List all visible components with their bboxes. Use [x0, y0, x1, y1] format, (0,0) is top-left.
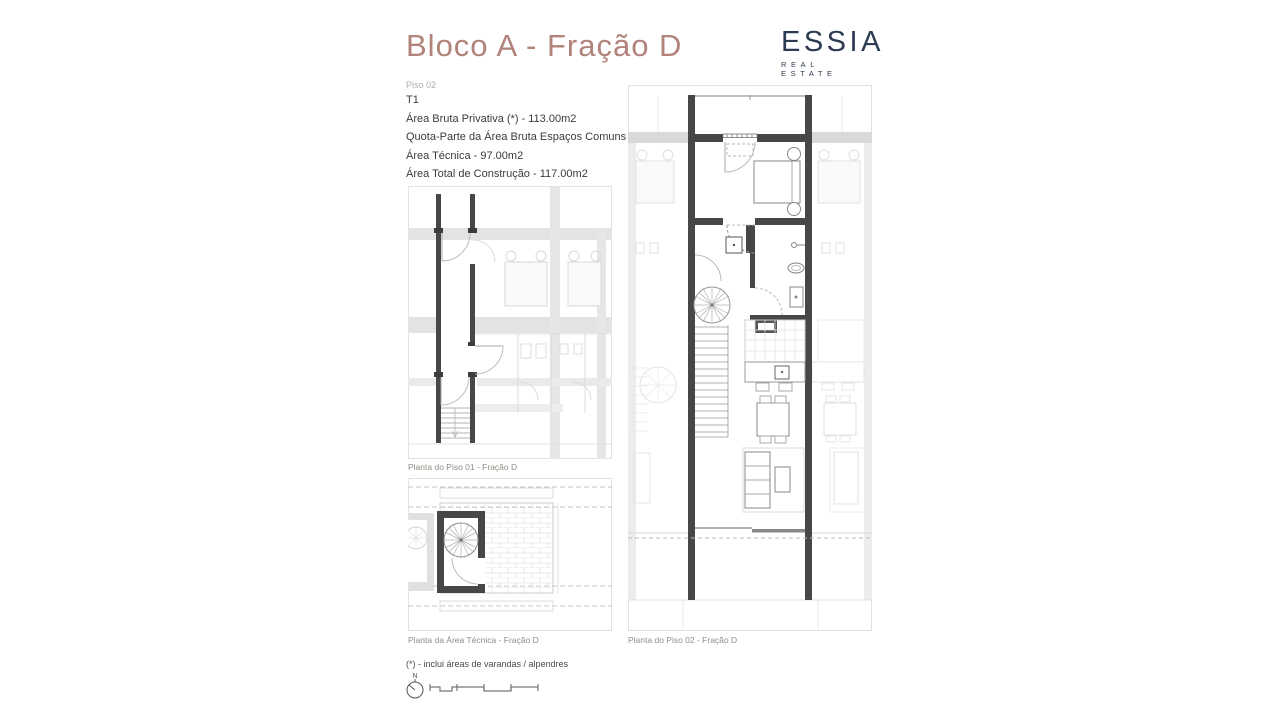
plan-piso02	[628, 85, 872, 631]
dining-table	[757, 396, 789, 443]
floor-label: Piso 02	[406, 80, 436, 90]
plan-piso01	[408, 186, 612, 459]
area-line: Área Total de Construção - 117.00m2	[406, 168, 588, 180]
north-compass-icon: N	[403, 670, 429, 702]
typology-label: T1	[406, 94, 419, 106]
brand-name: ESSIA	[781, 28, 872, 57]
north-label: N	[412, 673, 417, 680]
floor-plan-sheet: Bloco A - Fração D ESSIA REAL ESTATE Pis…	[0, 0, 1280, 720]
footnote: (*) - inclui áreas de varandas / alpendr…	[406, 659, 568, 669]
plan-area-tecnica-drawing	[408, 478, 612, 631]
area-line: Área Técnica - 97.00m2	[406, 150, 523, 162]
plan-piso02-drawing	[628, 85, 872, 631]
area-line: Área Bruta Privativa (*) - 113.00m2	[406, 113, 576, 125]
plan-area-tecnica	[408, 478, 612, 631]
plan-piso02-caption: Planta do Piso 02 - Fração D	[628, 635, 737, 645]
scale-bar	[428, 682, 540, 696]
brand-logo: ESSIA REAL ESTATE	[781, 28, 872, 78]
plan-area-tecnica-caption: Planta da Área Técnica - Fração D	[408, 635, 539, 645]
spiral-stair	[444, 523, 478, 557]
plan-piso01-caption: Planta do Piso 01 - Fração D	[408, 462, 517, 472]
plan-piso01-drawing	[408, 186, 612, 459]
neighbour-stair-faded	[408, 513, 434, 591]
brand-tagline: REAL ESTATE	[781, 60, 872, 78]
page-title: Bloco A - Fração D	[406, 28, 682, 64]
spiral-stair	[694, 287, 730, 323]
